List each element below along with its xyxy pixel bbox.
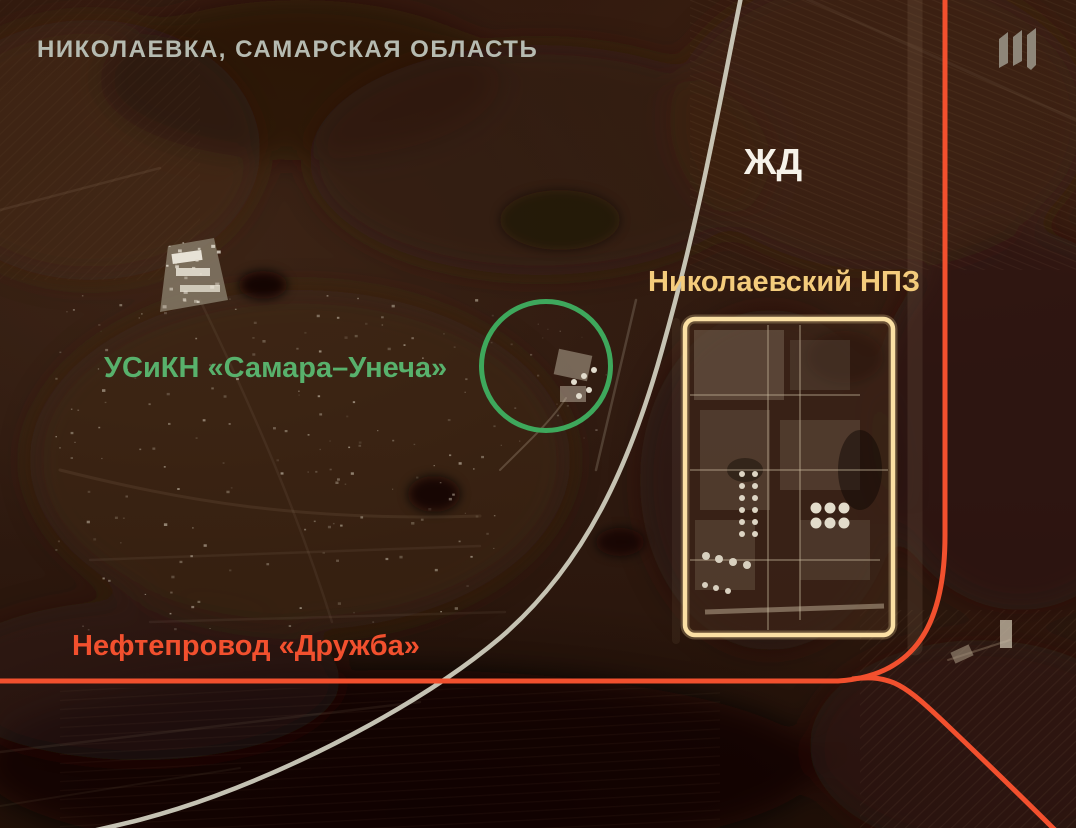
refinery-label: Николаевский НПЗ — [648, 266, 920, 298]
refinery-box-glow — [685, 319, 893, 635]
satellite-map: НИКОЛАЕВКА, САМАРСКАЯ ОБЛАСТЬ ЖД Николае… — [0, 0, 1076, 828]
refinery-box — [685, 319, 893, 635]
map-title: НИКОЛАЕВКА, САМАРСКАЯ ОБЛАСТЬ — [37, 36, 538, 63]
pipeline-branch-line — [852, 678, 1068, 828]
railway-label: ЖД — [743, 141, 802, 182]
map-annotations: НИКОЛАЕВКА, САМАРСКАЯ ОБЛАСТЬ ЖД Николае… — [0, 0, 1076, 828]
pipeline-line — [0, 0, 945, 681]
meduza-logo-icon — [999, 28, 1036, 70]
pipeline-label: Нефтепровод «Дружба» — [72, 630, 420, 662]
railway-line — [60, 0, 742, 828]
pump-station-label: УСиКН «Самара–Унеча» — [104, 352, 447, 384]
pump-station-circle — [482, 302, 611, 431]
